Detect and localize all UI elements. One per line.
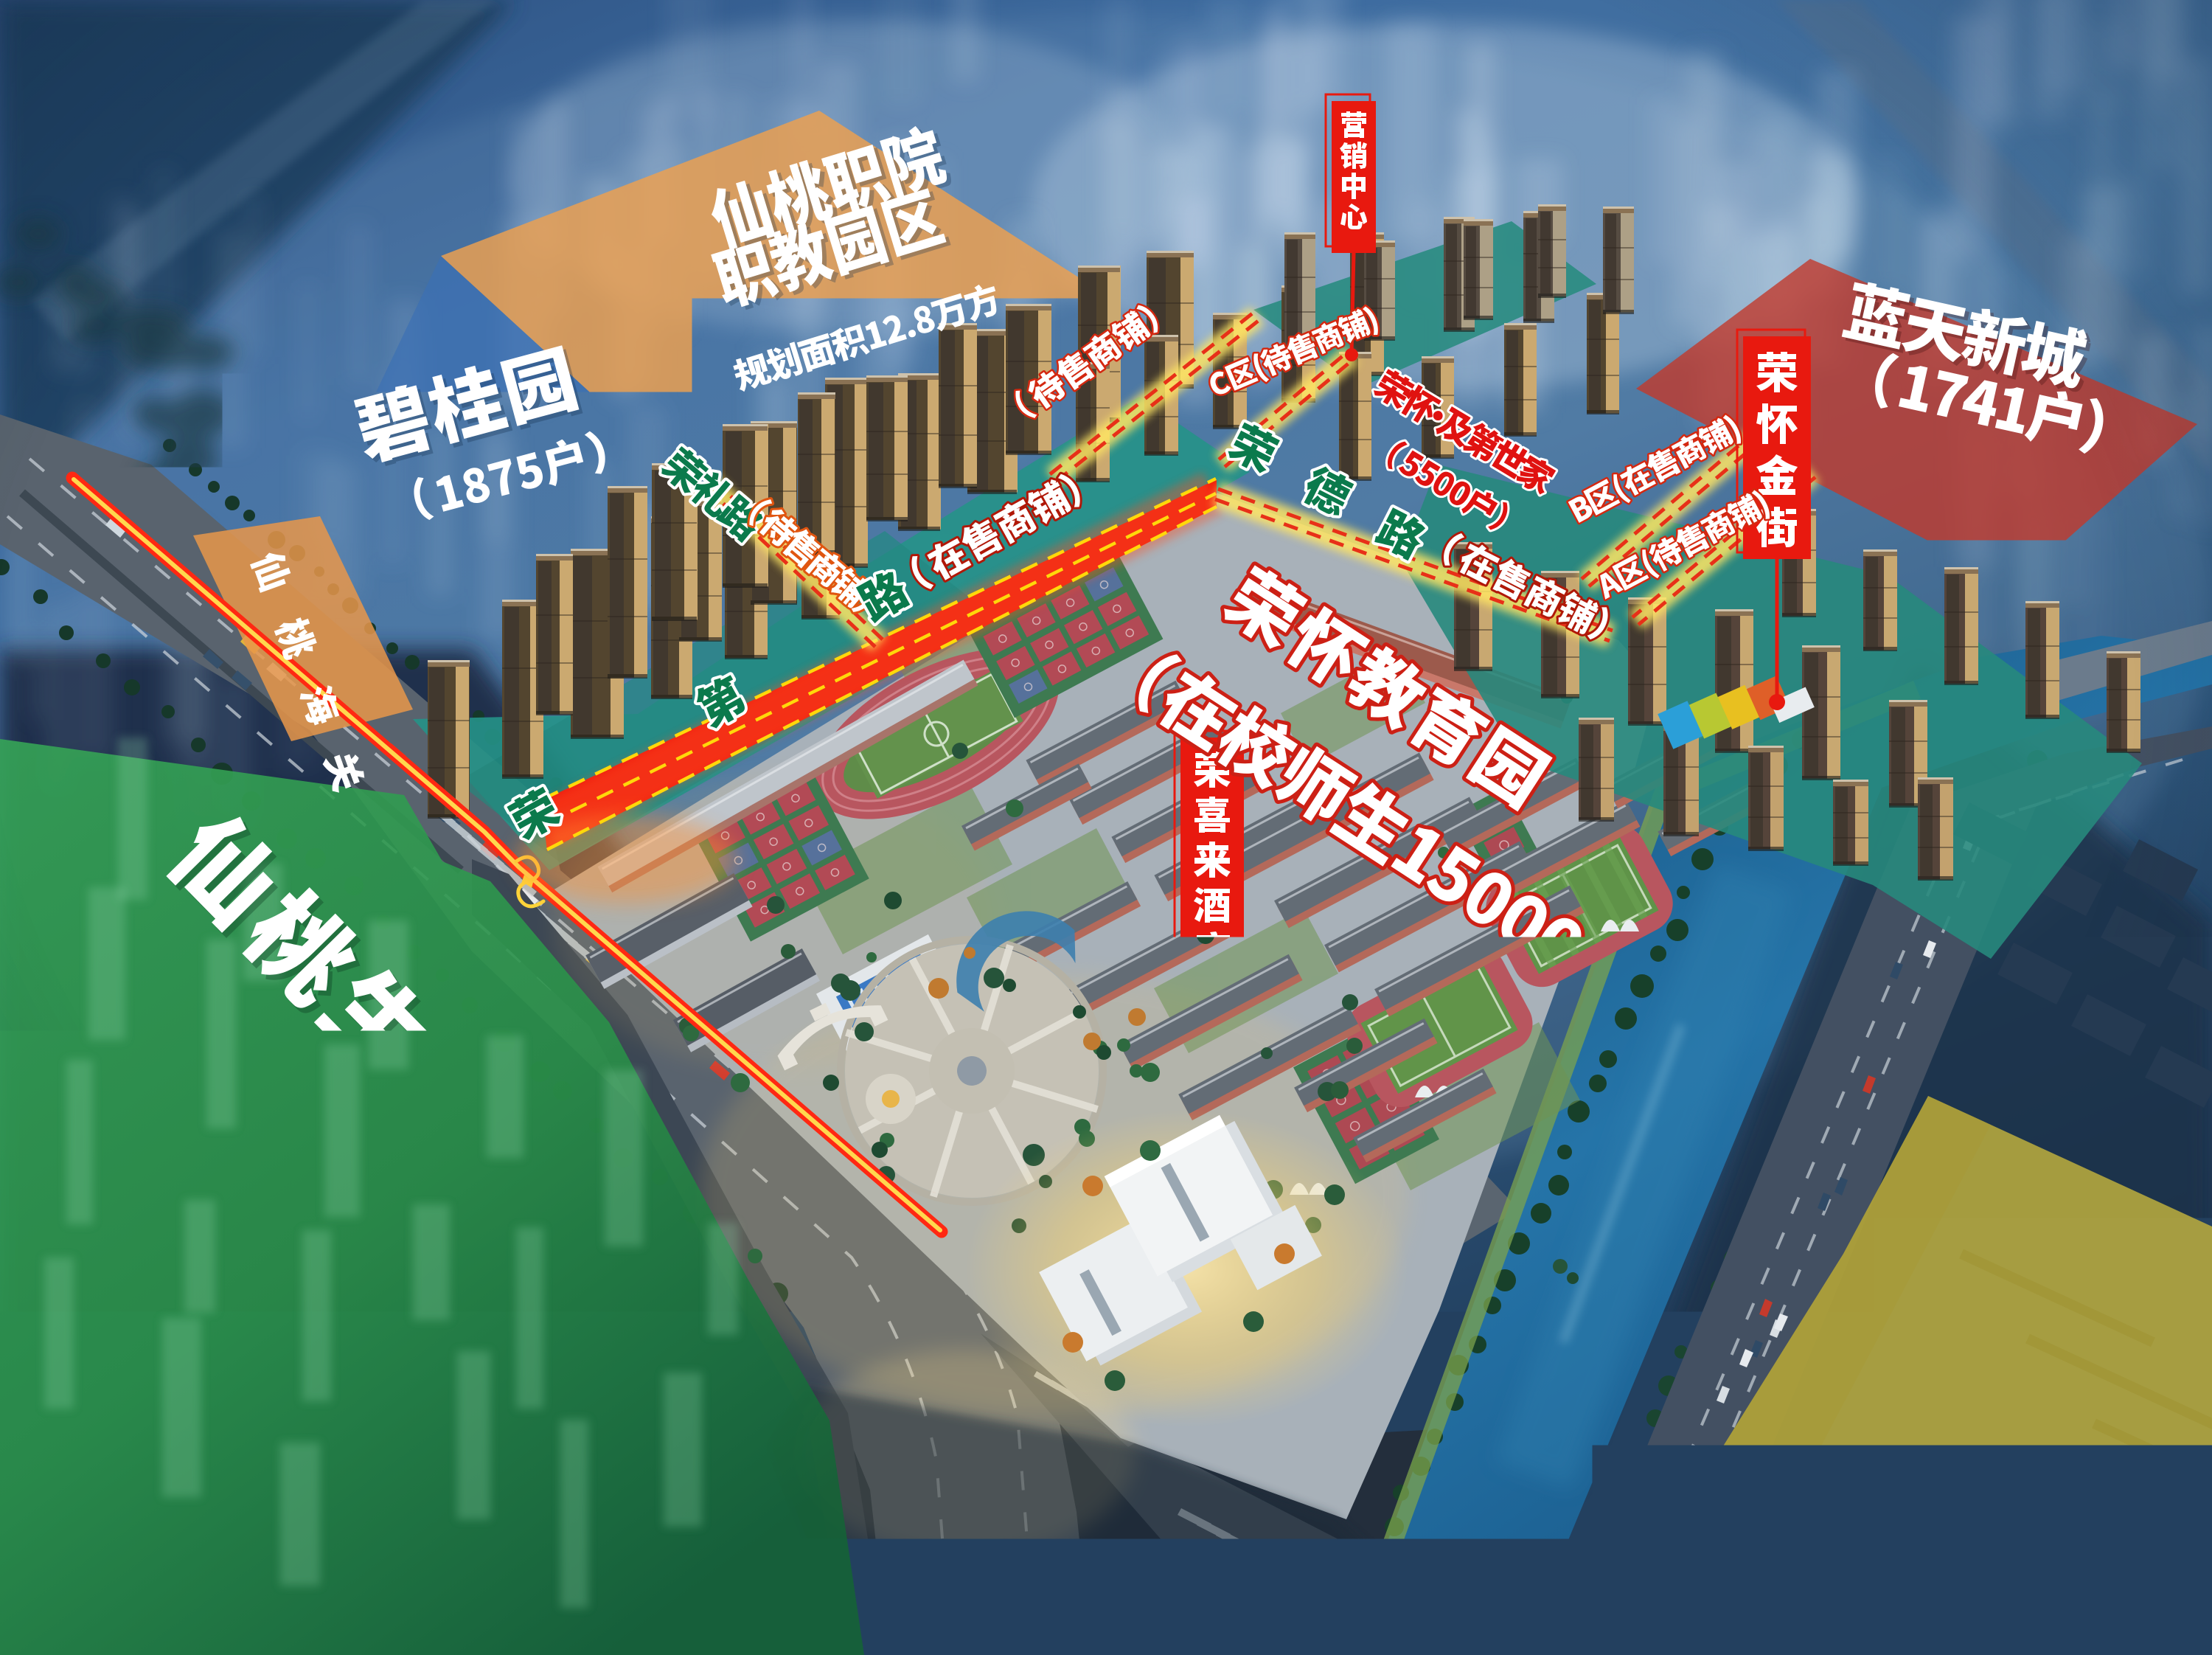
svg-text:—— www.xtfw.cn ——: —— www.xtfw.cn —— — [986, 1621, 1227, 1647]
